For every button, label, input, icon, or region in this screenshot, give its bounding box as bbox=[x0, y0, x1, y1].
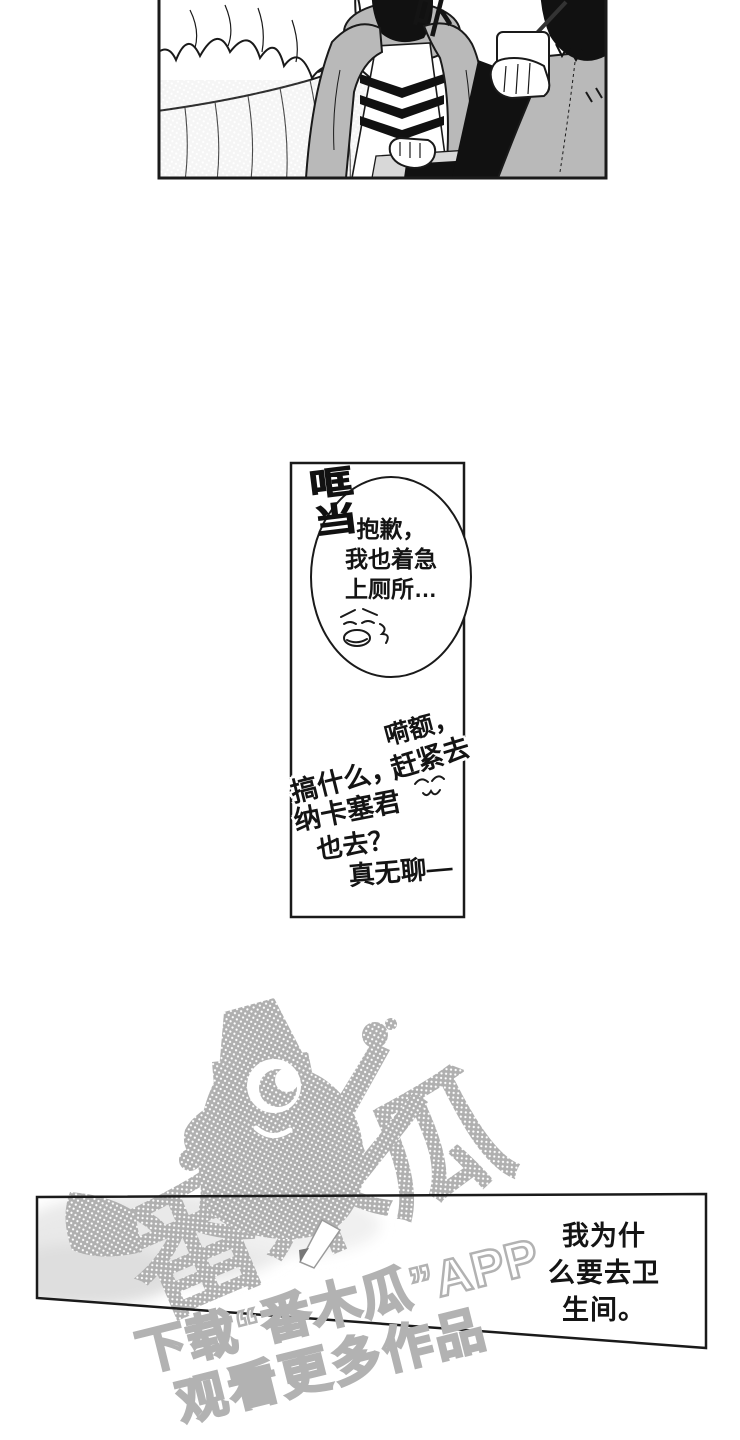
manga-page: 番木瓜 bbox=[0, 0, 740, 1440]
bottom-panel-caption: 我为什 么要去卫 生间。 bbox=[545, 1218, 663, 1329]
top-panel bbox=[150, 0, 612, 190]
speech-bubble-text: 抱歉， 我也着急 上厕所… bbox=[326, 514, 456, 604]
